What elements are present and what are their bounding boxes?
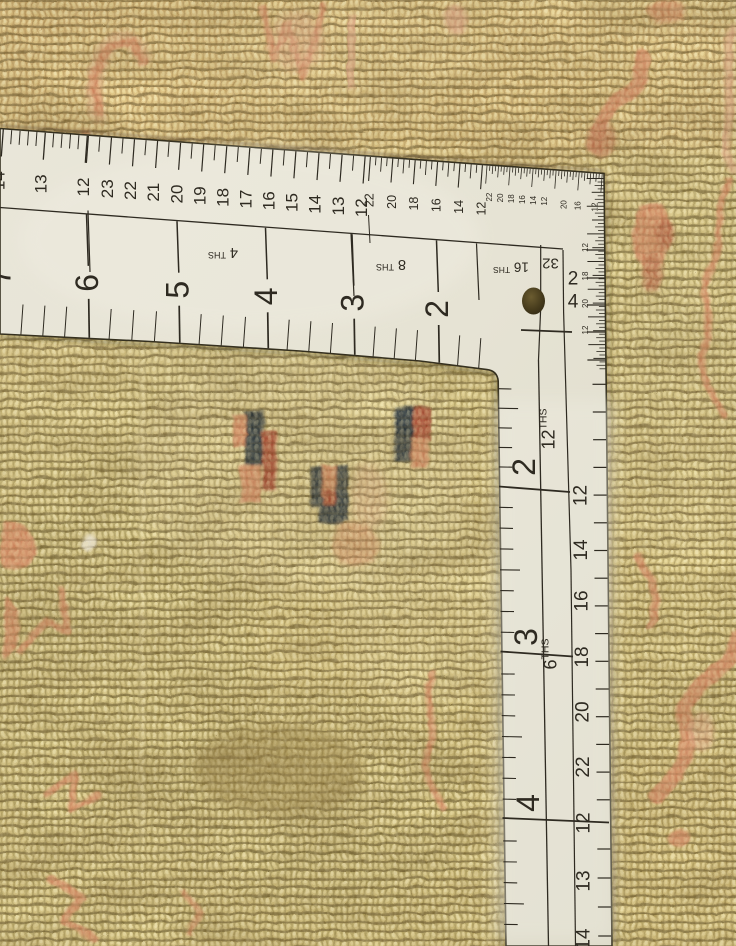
svg-text:16: 16	[260, 191, 279, 210]
svg-text:14: 14	[452, 200, 466, 214]
svg-text:12: 12	[571, 485, 592, 506]
svg-text:2: 2	[568, 269, 579, 290]
svg-text:18: 18	[581, 271, 590, 280]
svg-text:20: 20	[167, 185, 186, 204]
svg-text:20: 20	[560, 200, 569, 209]
svg-text:18: 18	[572, 646, 593, 667]
svg-text:16: 16	[572, 590, 593, 611]
svg-text:4: 4	[510, 794, 546, 812]
svg-text:12: 12	[581, 243, 590, 252]
svg-text:18: 18	[213, 188, 232, 207]
svg-text:4: 4	[248, 287, 284, 305]
svg-text:16: 16	[574, 201, 583, 210]
svg-text:18: 18	[407, 197, 421, 211]
svg-text:12: 12	[540, 196, 549, 205]
svg-text:12: 12	[474, 202, 488, 216]
svg-text:16: 16	[430, 198, 444, 212]
svg-text:22: 22	[485, 192, 494, 201]
svg-text:19: 19	[190, 186, 209, 205]
svg-text:23: 23	[98, 179, 117, 198]
svg-text:7: 7	[0, 268, 18, 286]
svg-text:18: 18	[507, 194, 516, 203]
svg-text:12: 12	[591, 202, 600, 211]
svg-text:22: 22	[573, 756, 594, 777]
svg-text:17: 17	[237, 190, 256, 209]
svg-text:2: 2	[506, 458, 542, 476]
svg-text:13: 13	[32, 174, 51, 193]
svg-text:14: 14	[571, 539, 592, 561]
svg-text:12: 12	[574, 812, 595, 833]
svg-text:21: 21	[144, 183, 163, 202]
svg-text:14: 14	[0, 171, 9, 190]
svg-text:20: 20	[385, 195, 399, 209]
svg-text:14: 14	[529, 195, 538, 204]
svg-text:13: 13	[329, 197, 348, 216]
svg-text:22: 22	[121, 181, 140, 200]
svg-text:5: 5	[160, 281, 196, 299]
svg-text:6: 6	[69, 274, 105, 292]
svg-text:20: 20	[496, 193, 505, 202]
svg-text:12: 12	[74, 178, 93, 197]
svg-text:14: 14	[306, 195, 325, 214]
svg-text:20: 20	[581, 299, 590, 308]
svg-text:12: 12	[581, 325, 590, 334]
svg-text:4: 4	[568, 292, 579, 313]
svg-text:16: 16	[518, 195, 527, 204]
svg-text:22: 22	[362, 193, 376, 207]
svg-text:32: 32	[542, 255, 559, 272]
svg-text:15: 15	[283, 193, 302, 212]
svg-text:2: 2	[419, 300, 455, 318]
svg-text:14: 14	[574, 928, 595, 946]
svg-text:13: 13	[574, 870, 595, 891]
svg-text:20: 20	[573, 701, 594, 722]
svg-text:3: 3	[335, 294, 371, 312]
